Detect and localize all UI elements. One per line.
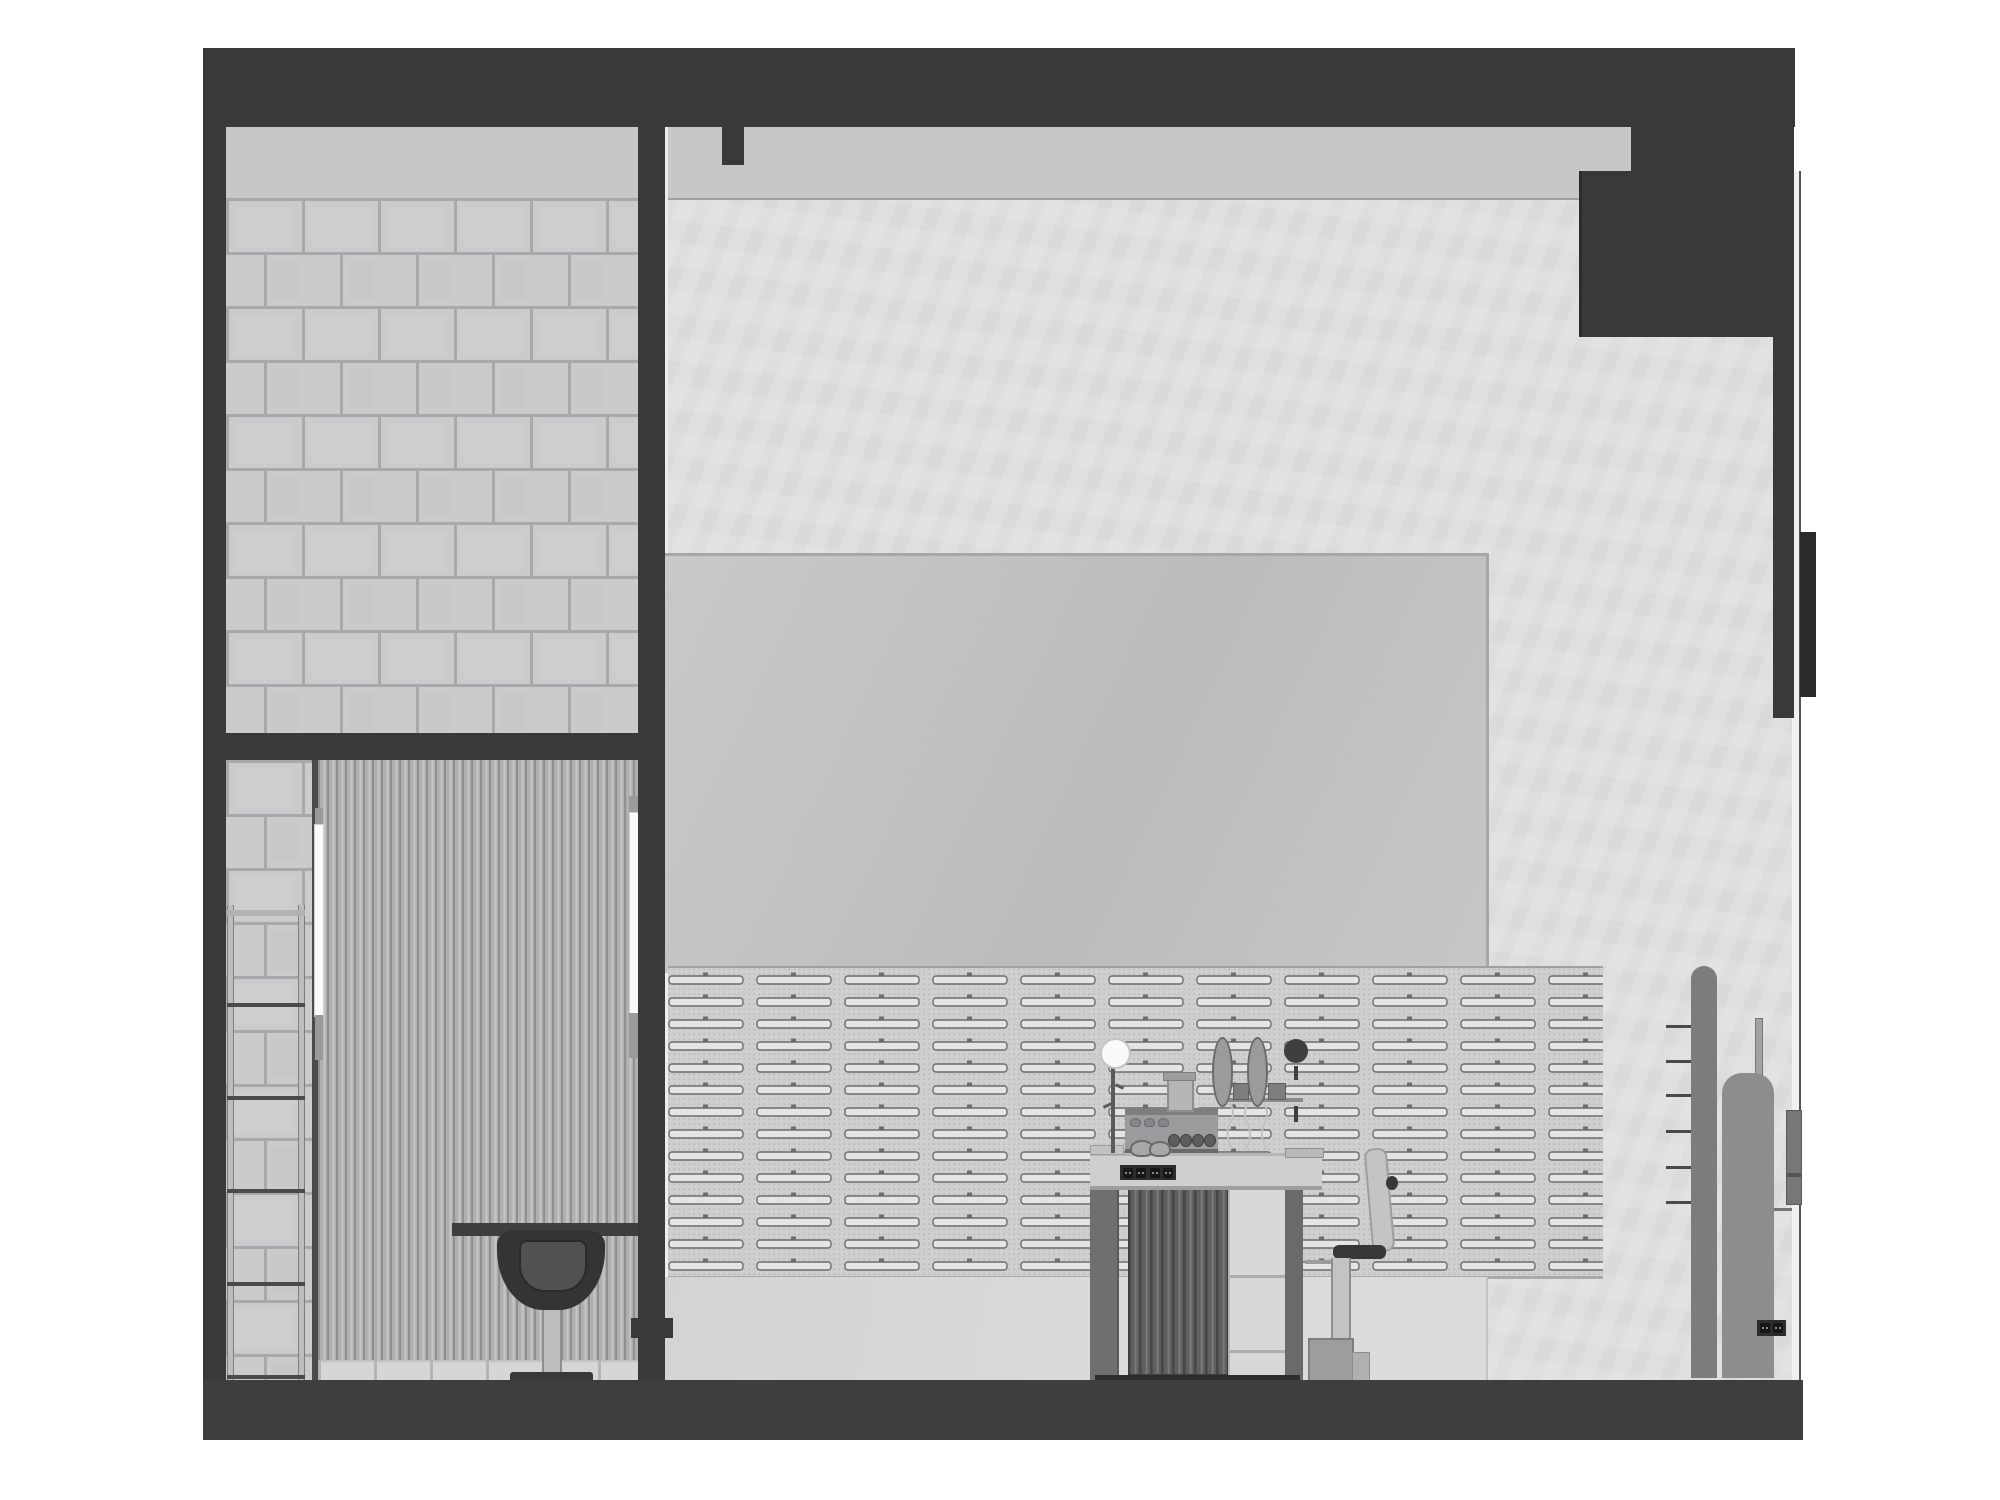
- rack-rung: [1666, 1201, 1693, 1204]
- rack-rung: [1666, 1060, 1693, 1063]
- stool-seat: [1333, 1245, 1386, 1259]
- hopper-lid: [1163, 1072, 1196, 1081]
- bowl-right: [1149, 1141, 1171, 1157]
- exterior-black-bar: [1800, 532, 1816, 697]
- tamper-unit: [1268, 1083, 1286, 1100]
- machine-cups: [1130, 1114, 1174, 1124]
- bar-right-panel: [1285, 1163, 1303, 1380]
- portafilter-icon: [1180, 1134, 1192, 1147]
- main-smooth-concrete-band: [665, 126, 1631, 200]
- tube-light-left-bracket: [315, 808, 323, 824]
- stool-pedestal: [1331, 1258, 1351, 1340]
- power-socket-icon: [1163, 1168, 1173, 1178]
- sphere-tick-upper: [1294, 1066, 1298, 1080]
- bean-hopper: [1167, 1078, 1194, 1112]
- ladder-rung: [227, 1003, 305, 1007]
- baseboard-socket: [1757, 1320, 1786, 1336]
- bar-countertop-lip: [1090, 1145, 1124, 1155]
- lamp-stem: [1111, 1063, 1115, 1153]
- handle-band: [1787, 1173, 1801, 1177]
- right-header-beam: [1631, 126, 1794, 172]
- projection-panel: [665, 553, 1489, 973]
- plate-on-edge-left: [1212, 1037, 1233, 1107]
- wall-ladder-rack: [227, 905, 305, 1383]
- left-smooth-concrete-band: [226, 126, 638, 200]
- antenna-rod: [1755, 1018, 1763, 1077]
- wall-bracket-line: [1774, 1208, 1794, 1211]
- left-wall-column: [203, 48, 226, 1440]
- bar-right-tray: [1285, 1148, 1324, 1158]
- cup-icon: [1130, 1118, 1141, 1127]
- tube-light-right-bracket: [629, 796, 638, 812]
- machine-portafilters: [1168, 1134, 1216, 1147]
- cup-icon: [1144, 1118, 1155, 1127]
- power-socket-icon: [1773, 1323, 1783, 1333]
- cup-icon: [1158, 1118, 1169, 1127]
- ladder-rung: [227, 1375, 305, 1379]
- ceiling-tab: [722, 126, 744, 165]
- portafilter-icon: [1204, 1134, 1216, 1147]
- left-divider-beam: [226, 733, 640, 760]
- power-socket-icon: [1123, 1168, 1133, 1178]
- counter-socket-strip: [1120, 1165, 1176, 1180]
- floor-slab: [203, 1380, 1803, 1440]
- plate-on-edge-right: [1247, 1037, 1268, 1107]
- steam-lines: [1222, 1103, 1274, 1151]
- stool-base-main: [1308, 1338, 1354, 1386]
- chair-pedestal: [542, 1310, 562, 1378]
- cmu-block-wall: [226, 198, 638, 733]
- drafting-chair-inner: [519, 1240, 587, 1292]
- right-wall-handle: [1786, 1110, 1802, 1205]
- stool-knob: [1386, 1176, 1398, 1190]
- power-socket-icon: [1760, 1323, 1770, 1333]
- cabinet-seam-lower: [1230, 1350, 1287, 1353]
- tube-light-left-cap: [315, 1015, 323, 1060]
- sphere-tick-lower: [1294, 1106, 1298, 1122]
- ceiling-beam: [203, 48, 1795, 127]
- bar-shutter-front: [1128, 1183, 1228, 1375]
- ladder-rung: [227, 1189, 305, 1193]
- tube-light-right-cap: [629, 1013, 638, 1058]
- power-socket-icon: [1136, 1168, 1146, 1178]
- right-soffit-box: [1579, 171, 1776, 337]
- ladder-rail-right: [298, 905, 305, 1383]
- ladder-rung: [227, 1096, 305, 1100]
- cabinet-seam-upper: [1230, 1275, 1287, 1278]
- ladder-rung: [227, 1282, 305, 1286]
- rack-rung: [1666, 1130, 1693, 1133]
- rack-rung: [1666, 1094, 1693, 1097]
- ladder-rung: [227, 910, 305, 916]
- lamp-globe: [1100, 1038, 1131, 1069]
- power-socket-icon: [1150, 1168, 1160, 1178]
- lower-wall-seam: [1486, 1277, 1488, 1380]
- pole-rack-rungs: [1666, 1020, 1693, 1210]
- elevation-drawing: [0, 0, 2000, 1500]
- center-mullion: [638, 126, 665, 1380]
- rack-rung: [1666, 1166, 1693, 1169]
- portafilter-icon: [1192, 1134, 1204, 1147]
- ladder-rail-left: [227, 905, 234, 1383]
- rack-rung: [1666, 1025, 1693, 1028]
- right-wall-column: [1773, 171, 1794, 718]
- tube-light-left: [314, 824, 324, 1017]
- bar-cabinet-front: [1228, 1183, 1287, 1375]
- mullion-hinge-left: [631, 1318, 640, 1338]
- grinder-unit: [1233, 1083, 1249, 1100]
- mullion-hinge-right: [664, 1318, 673, 1338]
- tall-pole-unit: [1691, 966, 1717, 1378]
- wall-sphere: [1284, 1039, 1308, 1063]
